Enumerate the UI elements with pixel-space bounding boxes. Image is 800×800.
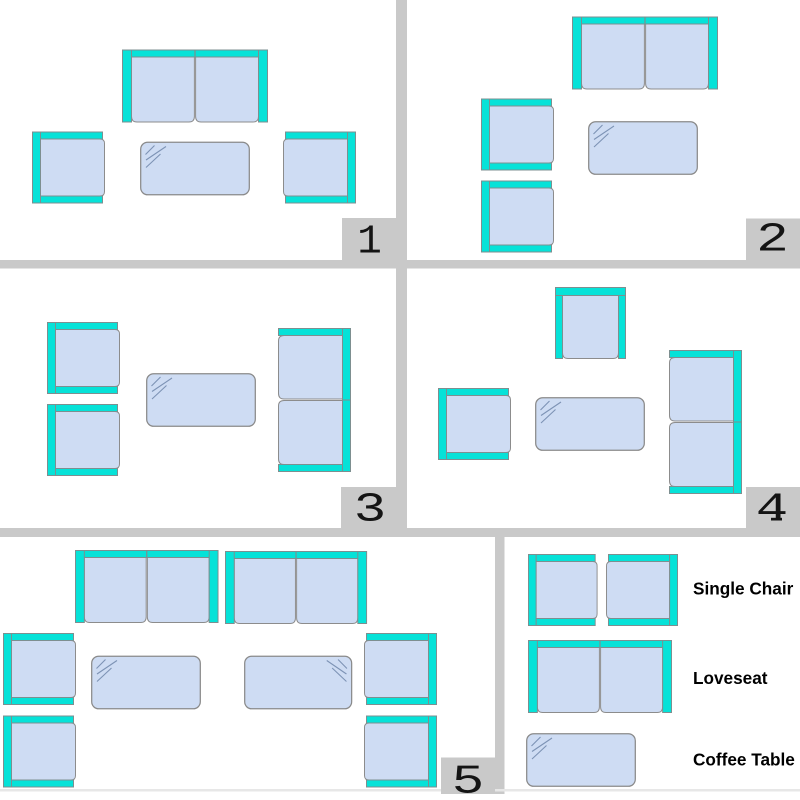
svg-text:5: 5 (452, 759, 484, 800)
svg-text:4: 4 (756, 487, 788, 533)
svg-text:1: 1 (357, 220, 382, 266)
svg-text:2: 2 (756, 217, 788, 263)
svg-text:Coffee Table: Coffee Table (693, 750, 795, 770)
svg-text:3: 3 (354, 487, 386, 533)
svg-text:Single Chair: Single Chair (693, 579, 794, 599)
svg-text:Loveseat: Loveseat (693, 668, 768, 688)
